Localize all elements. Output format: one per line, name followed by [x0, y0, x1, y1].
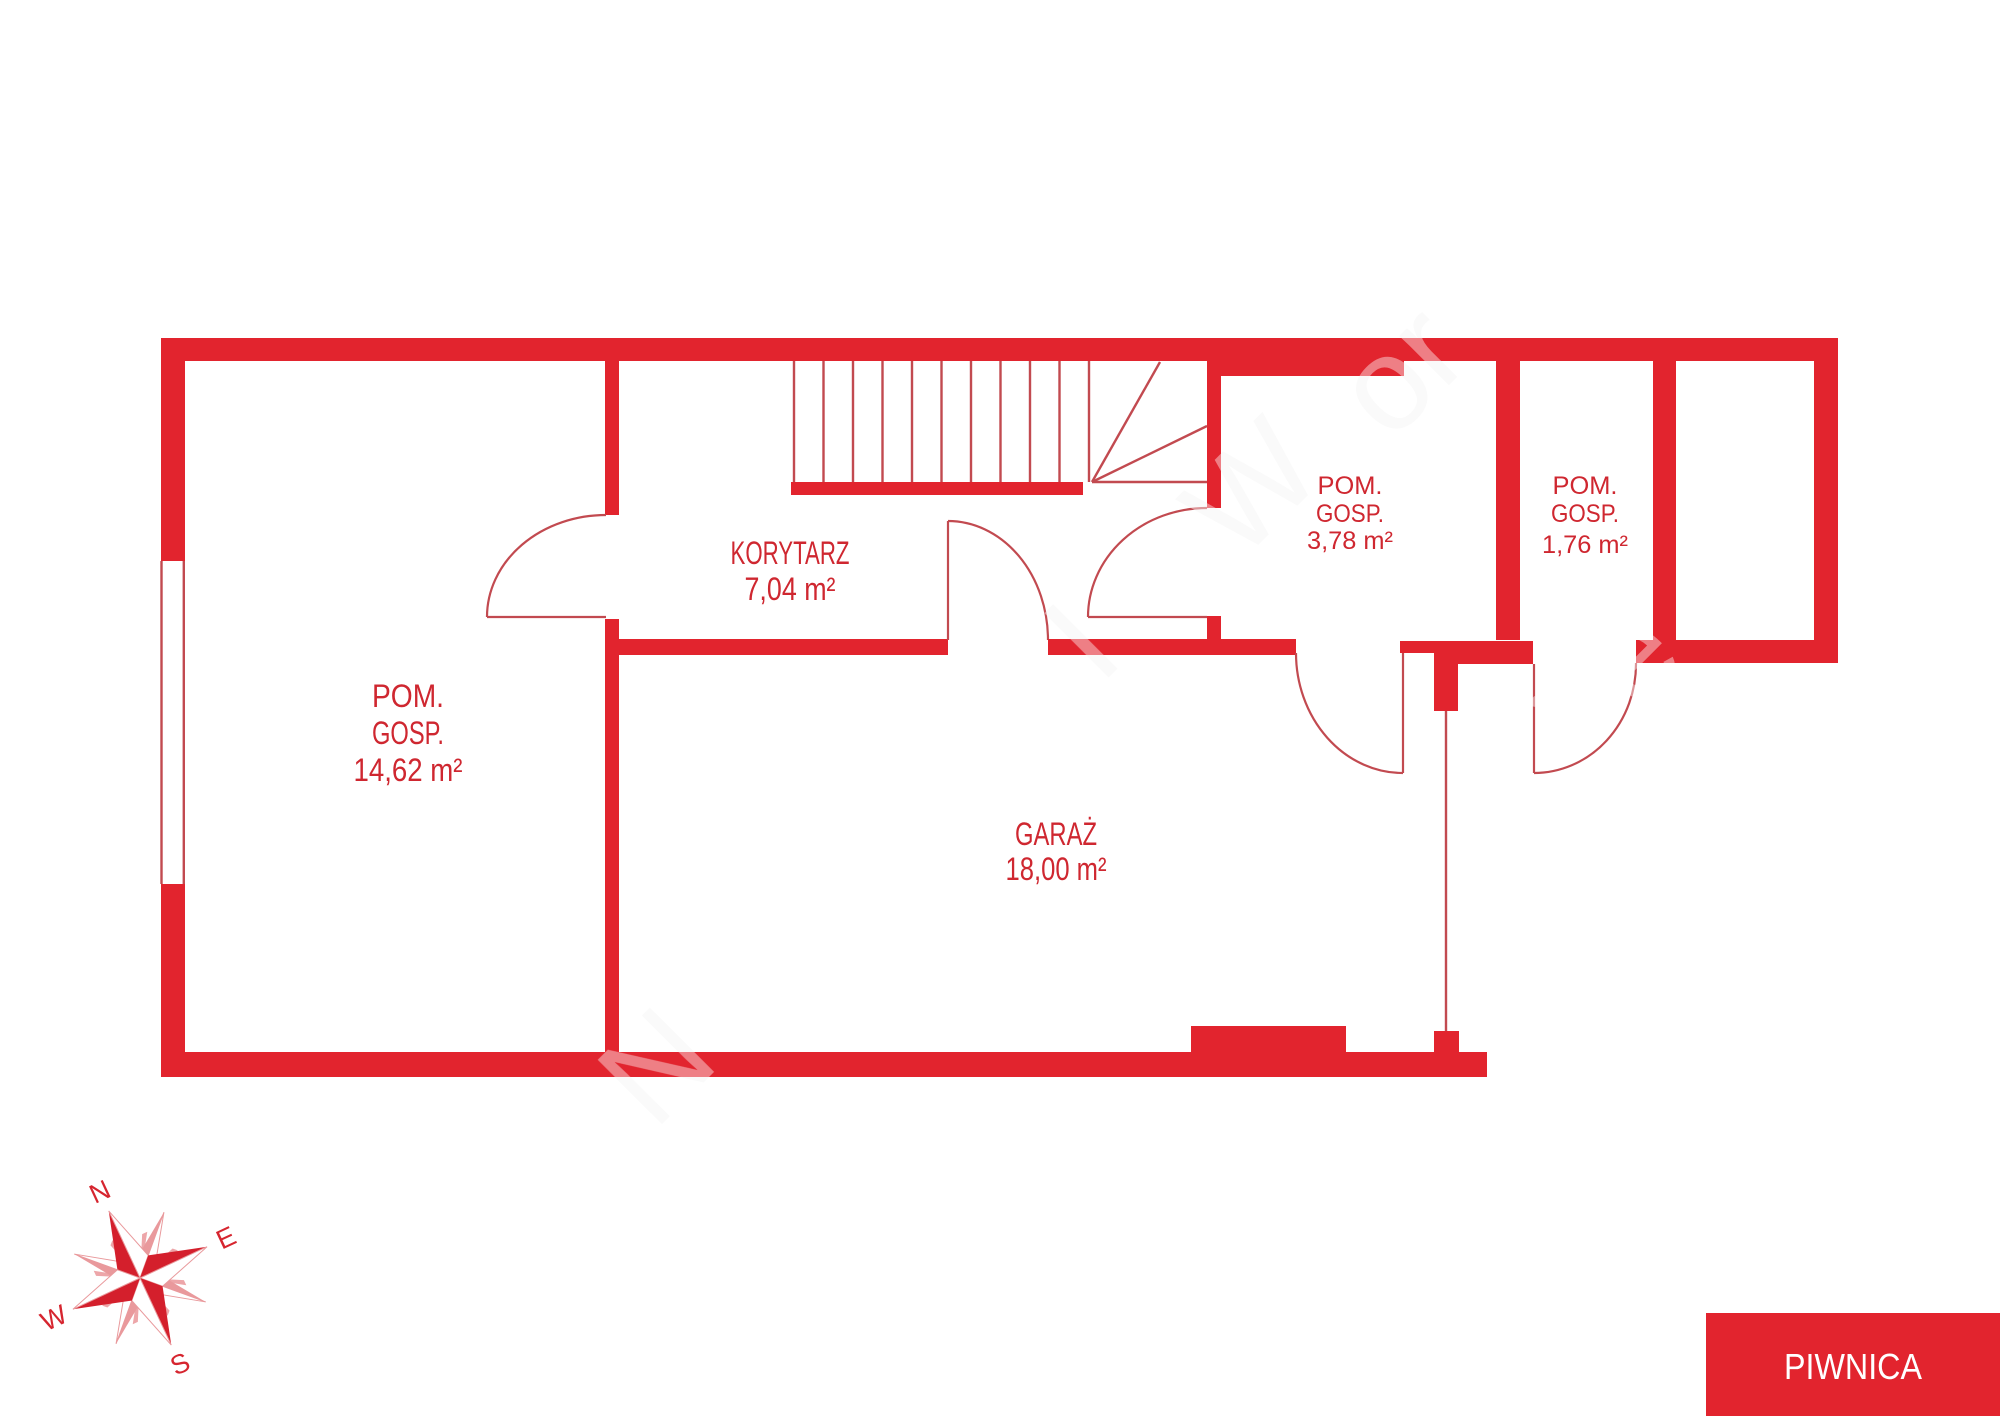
- svg-text:POM.: POM.: [372, 678, 444, 714]
- svg-text:7,04 m²: 7,04 m²: [745, 571, 836, 607]
- svg-text:GOSP.: GOSP.: [372, 715, 444, 751]
- svg-text:GOSP.: GOSP.: [1551, 500, 1619, 528]
- svg-text:1,76 m²: 1,76 m²: [1542, 531, 1628, 559]
- svg-text:GARAŻ: GARAŻ: [1015, 816, 1097, 852]
- svg-text:18,00 m²: 18,00 m²: [1006, 851, 1107, 887]
- svg-text:PIWNICA: PIWNICA: [1784, 1346, 1922, 1387]
- svg-text:3,78 m²: 3,78 m²: [1307, 527, 1393, 555]
- svg-text:KORYTARZ: KORYTARZ: [731, 535, 850, 571]
- svg-text:POM.: POM.: [1553, 472, 1618, 500]
- svg-text:14,62 m²: 14,62 m²: [354, 752, 463, 788]
